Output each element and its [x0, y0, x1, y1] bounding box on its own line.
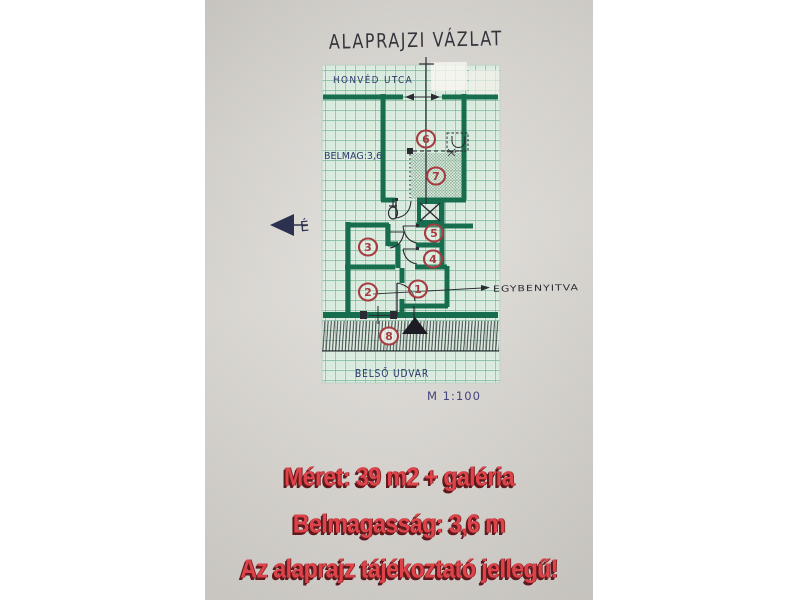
street-label: HONVÉD UTCA	[333, 73, 413, 86]
scale-label: M 1:100	[427, 389, 481, 403]
room-number: 1	[414, 283, 422, 296]
room-number: 6	[422, 133, 430, 146]
tape-patch	[431, 62, 468, 92]
room-number: 7	[432, 170, 440, 183]
room-marker-3: 3	[359, 239, 377, 256]
room-marker-7: 7	[427, 168, 445, 185]
open-connection-label: EGYBENYITVA	[493, 283, 579, 294]
room-number: 5	[430, 227, 438, 240]
ceiling-height-text: Belmagasság: 3,6 m	[205, 509, 593, 539]
size-text: Méret: 39 m2 + galéria	[205, 462, 593, 492]
room-marker-5: 5	[425, 225, 443, 242]
courtyard-label: BELSŐ UDVAR	[355, 366, 429, 380]
room-marker-2: 2	[359, 284, 377, 301]
room-marker-6: 6	[417, 131, 435, 148]
disclaimer-text: Az alaprajz tájékoztató jellegű!	[205, 554, 593, 584]
north-arrow-head	[270, 214, 294, 236]
room-number: 4	[429, 253, 437, 266]
north-label: É	[299, 218, 310, 236]
room-marker-8: 8	[380, 328, 398, 345]
tape-patch	[469, 70, 499, 96]
north-arrow: É	[270, 214, 310, 236]
ceiling-height-note: BELMAG:3,6	[324, 151, 382, 162]
page-title: ALAPRAJZI VÁZLAT	[329, 26, 503, 54]
room-marker-1: 1	[409, 281, 427, 298]
room-number: 3	[364, 241, 372, 254]
photo-of-floor-plan: ALAPRAJZI VÁZLAT	[205, 0, 593, 600]
room-number: 2	[364, 286, 372, 299]
room-marker-4: 4	[424, 251, 442, 268]
room-number: 8	[385, 330, 393, 343]
